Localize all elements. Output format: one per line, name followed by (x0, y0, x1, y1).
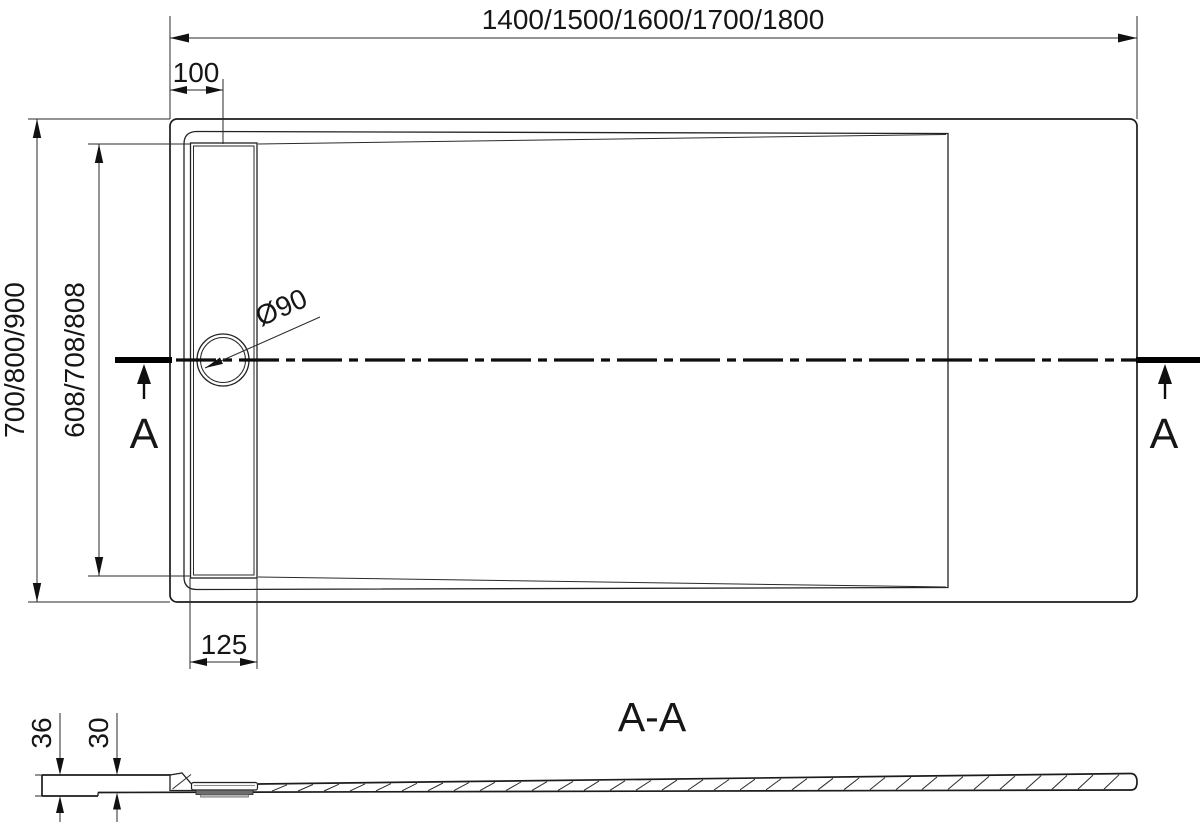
technical-drawing-page: A A Ø90 1400/1500/1600/1700/1800 (0, 0, 1200, 827)
hatch-stroke (1026, 776, 1041, 790)
drain-body (196, 790, 253, 795)
hatch-stroke (688, 780, 703, 790)
hatch-stroke (350, 784, 365, 791)
floor-top-surface (258, 774, 1131, 785)
hatch-stroke (1000, 776, 1015, 789)
overall-depth-text: 700/800/900 (0, 282, 30, 438)
hatch-stroke (480, 782, 495, 790)
shower-tray-drawing: A A Ø90 1400/1500/1600/1700/1800 (0, 0, 1200, 827)
hatch-stroke (662, 780, 677, 790)
dim-arrow (56, 758, 64, 775)
section-marker-left: A (115, 360, 172, 458)
drain-offset-text: 100 (173, 57, 220, 88)
hatch-stroke (636, 781, 651, 791)
edge-height-text: 36 (26, 717, 57, 748)
dimension-edge-height: 36 (26, 713, 64, 822)
hatch-stroke (428, 783, 443, 791)
right-end-cap (1131, 774, 1137, 791)
floor-slope-line-bottom (258, 577, 946, 587)
hatch-stroke (1104, 775, 1119, 789)
hatch-stroke (558, 781, 573, 790)
dim-arrow (1118, 34, 1137, 43)
channel-width-text: 125 (201, 629, 248, 660)
drain-flange (192, 783, 258, 791)
floor-slope-line-top (258, 135, 946, 145)
hatch-stroke (714, 780, 729, 791)
dim-arrow (95, 557, 103, 576)
dimension-overall-width: 1400/1500/1600/1700/1800 (170, 4, 1137, 119)
dimension-channel-width: 125 (190, 578, 257, 669)
hatch-stroke (740, 779, 755, 790)
section-letter-left: A (130, 410, 159, 458)
dimension-body-height: 30 (83, 713, 121, 822)
hatch-stroke (272, 785, 287, 791)
hatch-stroke (896, 777, 911, 789)
drain-trap-assembly (192, 783, 258, 798)
hatch-stroke (324, 784, 339, 791)
hatch-stroke (974, 776, 989, 789)
hatch-stroke (1078, 775, 1093, 789)
section-letter-right: A (1150, 410, 1179, 458)
hatch-stroke (844, 778, 859, 790)
hatch-stroke (766, 779, 781, 790)
hatch-stroke (818, 778, 833, 790)
dim-arrow (113, 758, 121, 775)
hatch-stroke (948, 777, 963, 790)
section-arrow-head-left (137, 364, 151, 384)
hatch-stroke (792, 779, 807, 790)
drain-diameter-callout: Ø90 (205, 282, 320, 368)
hatch-stroke (532, 782, 547, 791)
hatch-stroke (584, 781, 599, 790)
hatch-stroke (1052, 776, 1067, 790)
section-title: A-A (618, 694, 687, 740)
hatch-stroke (298, 785, 313, 792)
overall-width-text: 1400/1500/1600/1700/1800 (482, 4, 825, 35)
body-height-text: 30 (83, 717, 114, 748)
hatch-stroke (870, 778, 885, 790)
dim-arrow (33, 119, 41, 138)
section-view: A-A 36 (26, 694, 1137, 822)
hatch-stroke (610, 781, 625, 791)
dim-arrow (56, 796, 64, 813)
dim-arrow (113, 793, 121, 810)
dim-arrow (33, 583, 41, 602)
inner-depth-text: 608/708/808 (59, 282, 90, 438)
hatch-stroke (922, 777, 937, 790)
dim-arrow (95, 144, 103, 163)
hatch-stroke (506, 782, 521, 791)
hatch-stroke (454, 783, 469, 791)
hatch-stroke (402, 783, 417, 791)
section-arrow-head-right (1158, 364, 1172, 384)
drain-outlet (201, 795, 249, 798)
hatch-stroke (376, 784, 391, 791)
dim-arrow (170, 34, 189, 43)
top-view: A A Ø90 1400/1500/1600/1700/1800 (0, 4, 1200, 669)
section-marker-right: A (1136, 360, 1200, 458)
